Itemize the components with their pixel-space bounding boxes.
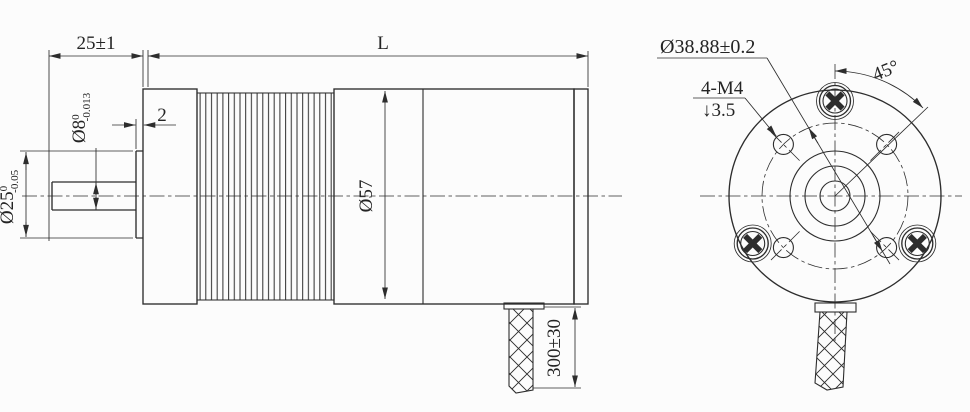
phillips-screw-icon [817,83,854,120]
dim-bolt-circle-label: Ø38.88±0.2 [660,36,755,58]
dim-boss-diameter-label: Ø250-0.05 [0,169,21,224]
dim-shaft-length-label: 25±1 [77,33,116,54]
end-cap [574,89,588,304]
engineering-drawing-canvas: 25±1 L 2 Ø80-0.013 [0,0,970,412]
dim-body-diameter-label: Ø57 [356,180,377,213]
dim-mounting-holes: 4-M4 ↓3.5 [693,78,776,136]
side-view: 25±1 L 2 Ø80-0.013 [0,33,622,393]
rear-view: 45° Ø38.88±0.2 4-M4 ↓3.5 [657,36,962,390]
cable-grommet-rear [815,303,856,312]
stator-fins [197,93,334,300]
dim-hole-angle-label: 45° [870,56,903,85]
dim-body-length-label: L [377,33,389,54]
dim-cable-length-label: 300±30 [544,319,565,377]
dim-bolt-circle: Ø38.88±0.2 [657,36,890,264]
dim-boss-thickness: 2 [112,105,176,149]
mounting-hole [877,134,897,154]
front-housing [143,89,197,304]
dim-cable-length: 300±30 [533,307,581,388]
motor-dimension-drawing: 25±1 L 2 Ø80-0.013 [0,0,970,412]
dim-shaft-diameter-label: Ø80-0.013 [69,92,93,143]
dim-boss-thickness-label: 2 [157,105,167,126]
dim-body-diameter: Ø57 [356,91,385,299]
dim-boss-diameter: Ø250-0.05 [0,151,133,238]
dim-body-length: L [148,33,588,87]
lead-wire-cable-rear [815,312,847,390]
dim-mounting-holes-label: 4-M4 [701,78,744,99]
lead-wire-cable-side [509,309,533,393]
pilot-boss [136,151,143,238]
dim-thread-depth-label: ↓3.5 [702,100,735,121]
